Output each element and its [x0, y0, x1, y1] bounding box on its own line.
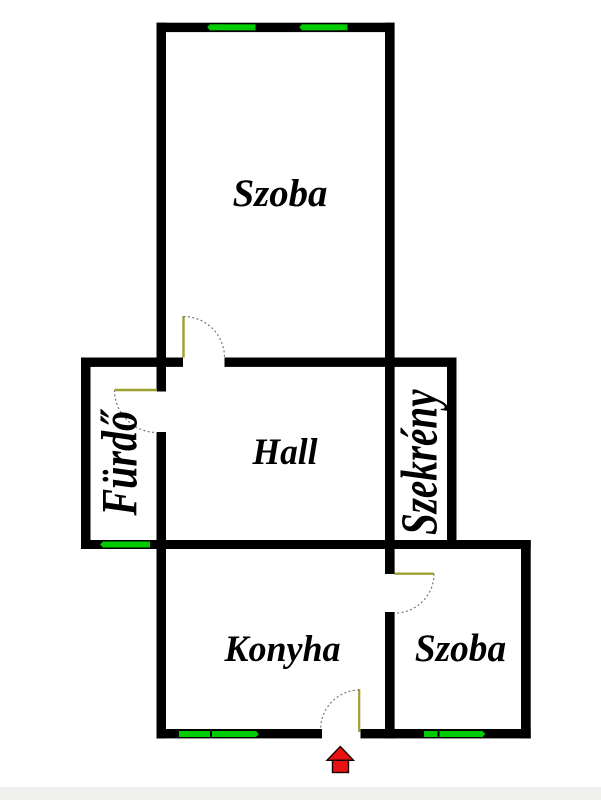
svg-text:Szoba: Szoba [415, 627, 506, 670]
svg-text:Hall: Hall [251, 430, 318, 472]
svg-text:Szoba: Szoba [233, 172, 328, 215]
svg-text:Fürdő: Fürdő [91, 408, 148, 516]
svg-text:Konyha: Konyha [224, 628, 341, 670]
svg-text:Szekrény: Szekrény [390, 389, 448, 535]
